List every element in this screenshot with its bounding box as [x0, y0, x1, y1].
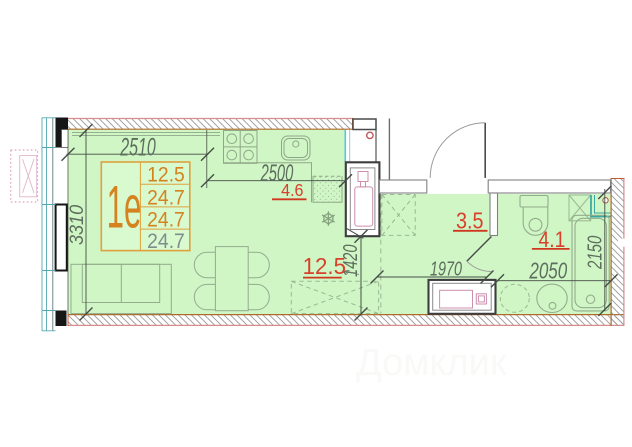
svg-text:2050: 2050 — [529, 259, 568, 284]
svg-text:3310: 3310 — [66, 204, 88, 245]
svg-text:24.7: 24.7 — [147, 185, 185, 209]
svg-text:2510: 2510 — [119, 134, 156, 161]
svg-text:3.5: 3.5 — [456, 208, 484, 234]
svg-text:24.7: 24.7 — [147, 229, 185, 253]
svg-text:1е: 1е — [107, 175, 142, 241]
svg-text:Домклик: Домклик — [356, 342, 507, 384]
svg-text:2150: 2150 — [583, 236, 606, 270]
svg-text:1970: 1970 — [430, 257, 462, 280]
svg-text:4.6: 4.6 — [281, 180, 303, 200]
svg-text:12.5: 12.5 — [147, 163, 185, 187]
svg-text:12.5: 12.5 — [303, 253, 346, 279]
